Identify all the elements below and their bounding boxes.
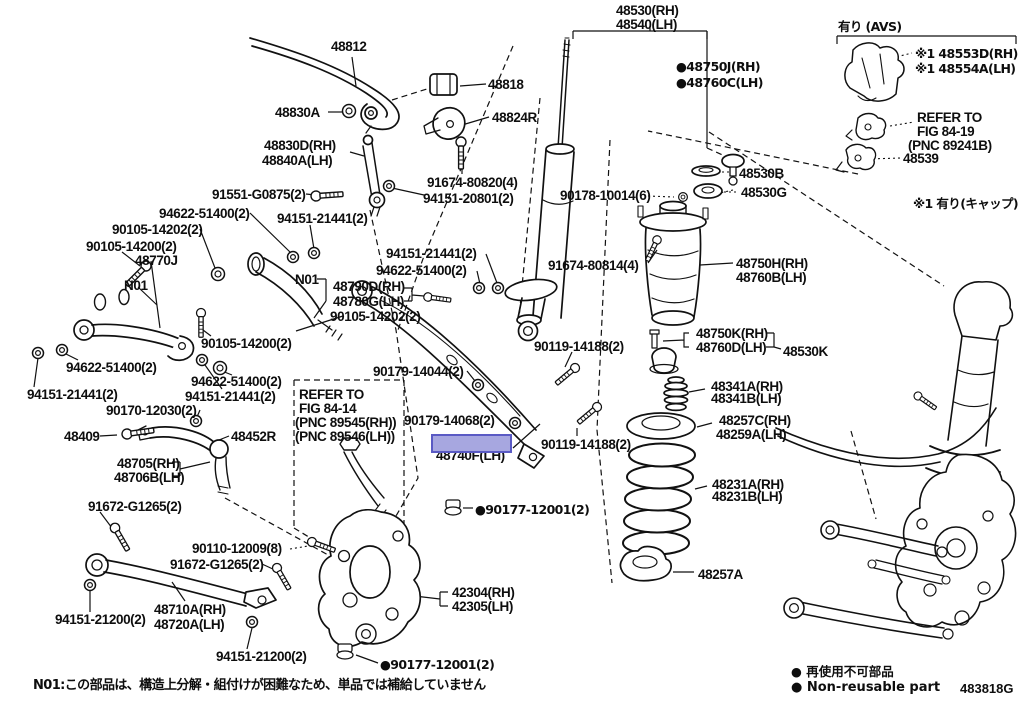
part-labels-layer: 488124881848830A48824R48830D(RH)48840A(L… [0,0,1024,707]
part-label: 90170-12030(2) [106,404,196,418]
part-label: 48760D(LH) [696,341,766,355]
part-label: 48341B(LH) [711,392,781,406]
part-label: ※1 48554A(LH) [915,62,1015,75]
footnote-n01: N01:この部品は、構造上分解・組付けが困難なため、単品では補給していません [33,679,486,693]
part-label: 48705(RH) [117,457,179,471]
part-label: 90105-14200(2) [86,240,176,254]
part-label: 48818 [488,78,524,92]
part-label: 48530G [741,186,787,200]
part-label: 48530B [739,167,784,181]
part-label: 91672-G1265(2) [170,558,263,572]
part-label: ※1 有り(キャップ) [913,197,1018,210]
part-label: 48452R [231,430,276,444]
part-label: 48409 [64,430,100,444]
part-label: 42305(LH) [452,600,513,614]
part-label: 48770J [135,254,178,268]
part-label: 94151-21200(2) [216,650,306,664]
part-label: (PNC 89546(LH)) [295,430,395,444]
part-label: 90179-14068(2) [404,414,494,428]
part-label: 91674-80820(4) [427,176,517,190]
part-label: 90119-14188(2) [541,438,631,452]
part-label: 48780G(LH) [333,295,404,309]
part-label: 48720A(LH) [154,618,224,632]
part-label: 91674-80814(4) [548,259,638,273]
part-label: (PNC 89545(RH)) [295,416,396,430]
part-label: 94151-20801(2) [423,192,513,206]
part-label: 48257A [698,568,743,582]
part-label: 48530K [783,345,828,359]
part-label: 48257C(RH) [719,414,791,428]
part-label: 94151-21441(2) [277,212,367,226]
part-label: ●90177-12001(2) [475,503,589,516]
part-label: 90179-14044(2) [373,365,463,379]
part-label: 90110-12009(8) [192,542,282,556]
part-label: 48812 [331,40,367,54]
part-label: 48540(LH) [616,18,677,32]
part-label: 90105-14202(2) [112,223,202,237]
part-label: N01 [295,273,319,287]
legend-non-reusable-en: ● Non-reusable part [791,681,940,695]
part-label: ●48750J(RH) [676,60,760,73]
part-label: 48840A(LH) [262,154,332,168]
part-label: 48824R [492,111,537,125]
part-label: REFER TO [299,388,364,402]
part-label: 94151-21441(2) [185,390,275,404]
part-label: ●90177-12001(2) [380,658,494,671]
part-label: 有り (AVS) [838,20,901,33]
part-label: 90105-14200(2) [201,337,291,351]
part-label: ※1 48553D(RH) [915,47,1018,60]
part-label: 94622-51400(2) [66,361,156,375]
part-label: 48830D(RH) [264,139,336,153]
part-label: 90178-10014(6) [560,189,650,203]
part-label: 94151-21200(2) [55,613,145,627]
legend-non-reusable-jp: ● 再使用不可部品 [791,665,894,679]
diagram-canvas: 488124881848830A48824R48830D(RH)48840A(L… [0,0,1024,707]
part-label: FIG 84-19 [917,125,974,139]
diagram-code: 483818G [960,682,1014,696]
part-label: 90119-14188(2) [534,340,624,354]
part-label: 48830A [275,106,320,120]
part-label: 48259A(LH) [716,428,786,442]
part-label: 48710A(RH) [154,603,226,617]
part-label: 42304(RH) [452,586,514,600]
part-label: 48706B(LH) [114,471,184,485]
part-label: 48750H(RH) [736,257,808,271]
part-label: 94622-51400(2) [376,264,466,278]
part-label: 48530(RH) [616,4,678,18]
part-label: 48539 [903,152,939,166]
part-label: ●48760C(LH) [676,76,763,89]
highlight-box [431,434,512,453]
part-label: N01 [124,279,148,293]
part-label: 94151-21441(2) [27,388,117,402]
part-label: 48750K(RH) [696,327,768,341]
part-label: 48760B(LH) [736,271,806,285]
part-label: 91551-G0875(2) [212,188,305,202]
part-label: 48790D(RH) [333,280,405,294]
part-label: 94151-21441(2) [386,247,476,261]
part-label: 94622-51400(2) [191,375,281,389]
part-label: 90105-14202(2) [330,310,420,324]
part-label: 91672-G1265(2) [88,500,181,514]
part-label: REFER TO [917,111,982,125]
part-label: FIG 84-14 [299,402,356,416]
part-label: 48231B(LH) [712,490,782,504]
part-label: 94622-51400(2) [159,207,249,221]
